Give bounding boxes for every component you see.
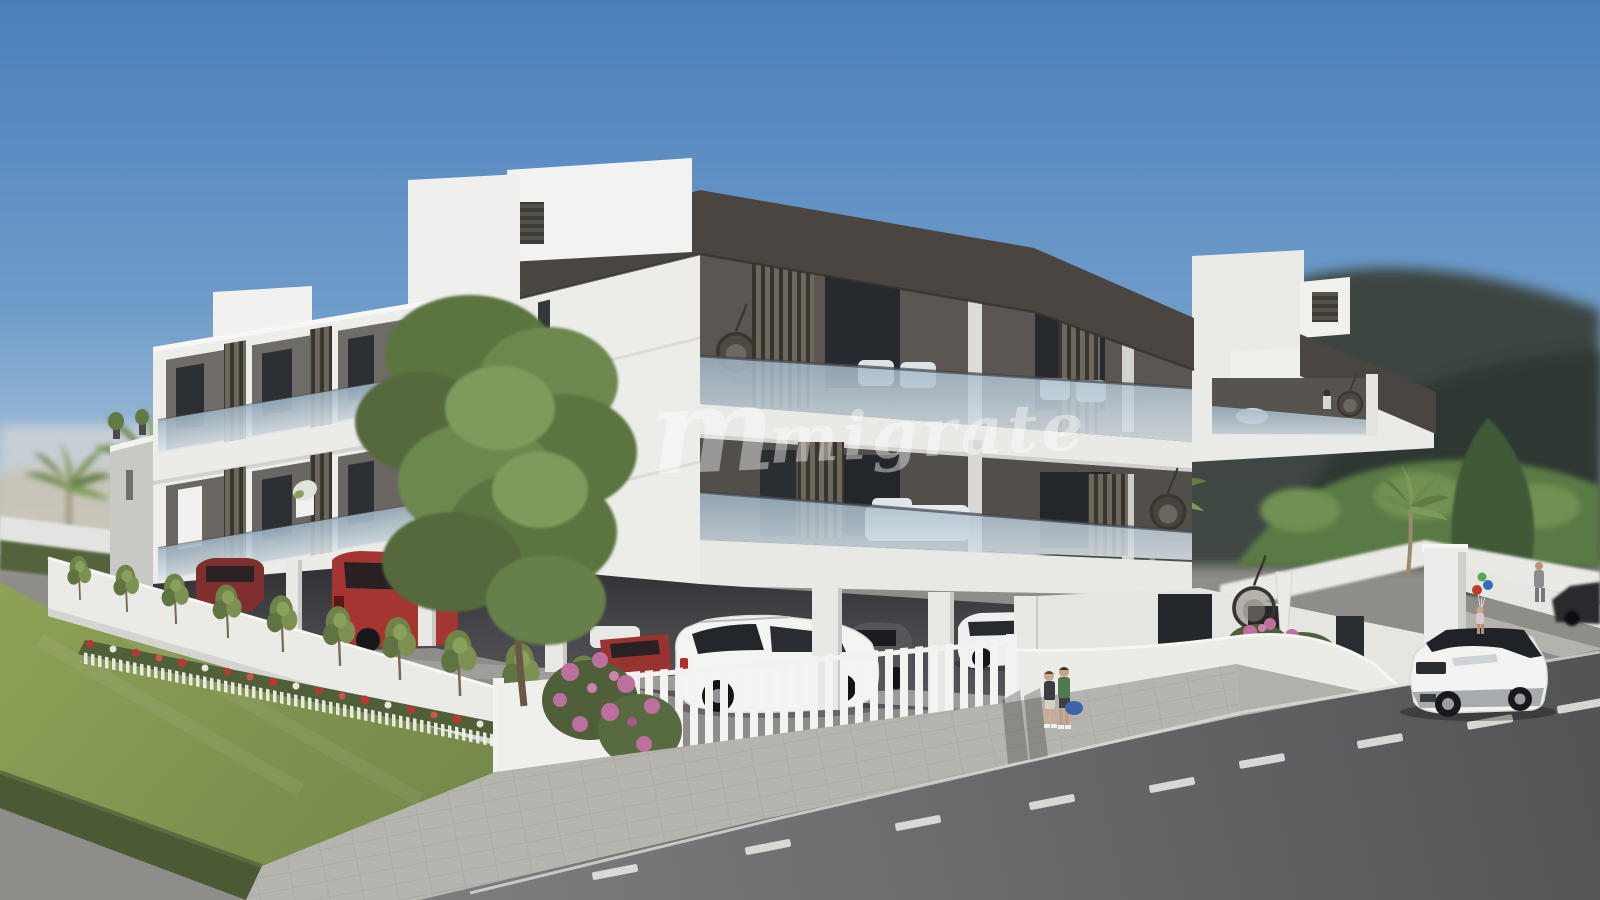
slit-window (126, 470, 133, 500)
apartment-door (178, 486, 202, 550)
balloon-green (1478, 573, 1487, 582)
suv-grille (1416, 662, 1446, 674)
balloon-blue (1483, 580, 1493, 590)
balloon-red (1472, 585, 1482, 595)
blue-bag (1065, 701, 1083, 715)
watermark-logo-icon: m (647, 358, 778, 502)
render-canvas: m migrate (0, 0, 1600, 900)
watermark-text: migrate (767, 387, 1089, 479)
architectural-render: m migrate (0, 0, 1600, 900)
vent-grille-icon (1312, 292, 1338, 322)
